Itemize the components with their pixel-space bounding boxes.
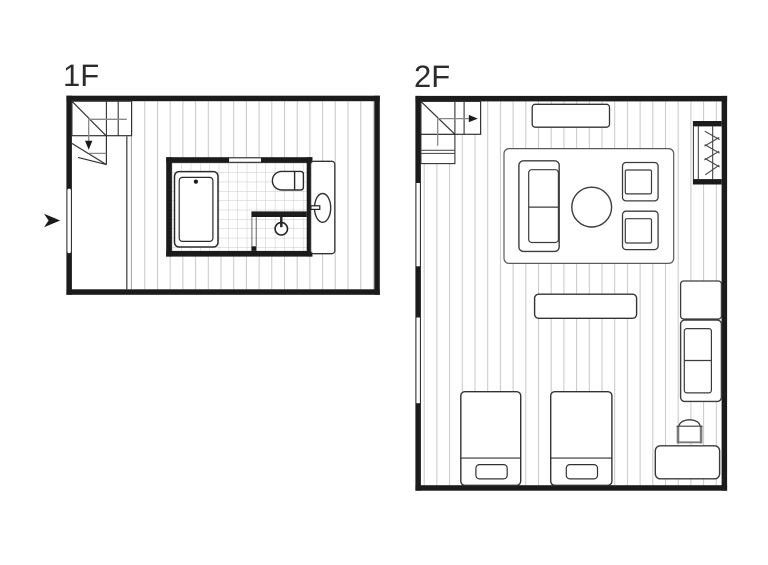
svg-text:2F: 2F [414, 59, 450, 94]
svg-text:1F: 1F [63, 58, 99, 93]
